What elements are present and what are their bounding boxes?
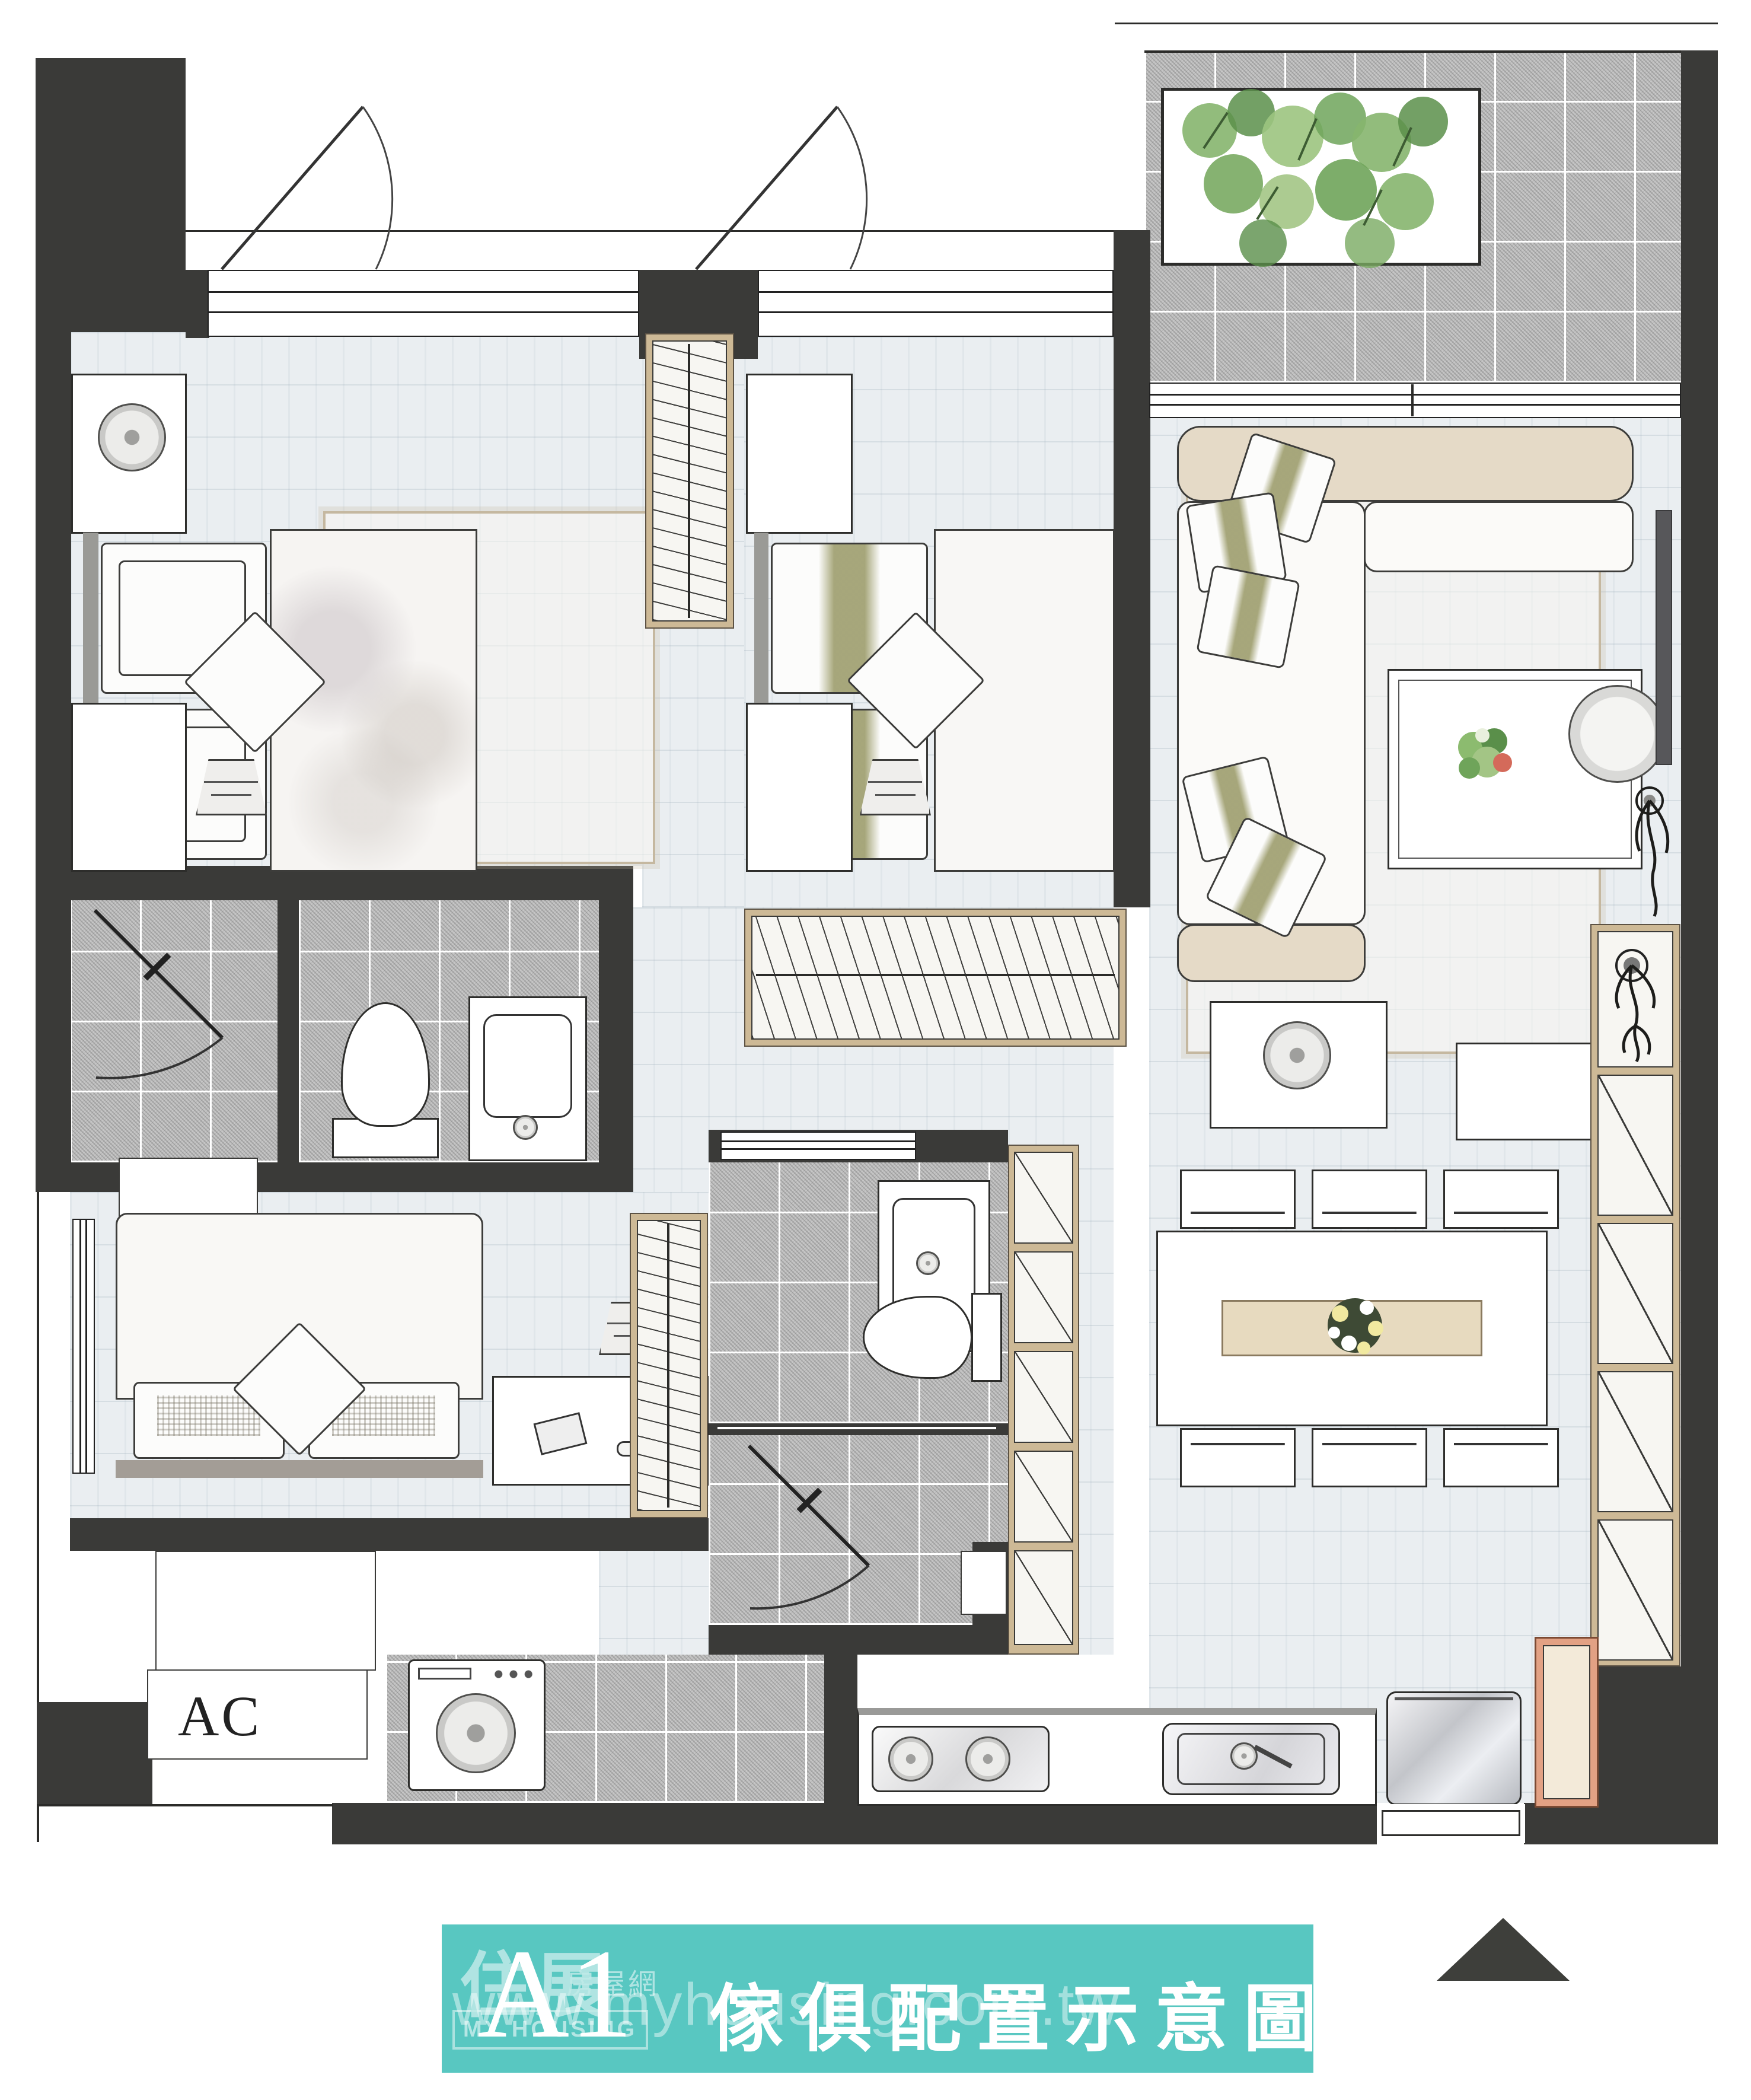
master-bedroom-window bbox=[208, 270, 639, 337]
title-banner: 住展 房屋網 MY HOUSING www.myhousing.com.tw A… bbox=[442, 1924, 1313, 2073]
wall-window-jamb-left bbox=[186, 270, 209, 338]
sofa-pillow bbox=[1196, 565, 1300, 669]
wall-right bbox=[1681, 50, 1718, 1844]
potted-plant-icon bbox=[1441, 712, 1530, 801]
plan-outline-bottom-left bbox=[37, 1804, 333, 1806]
cabinet-shelf bbox=[1014, 1152, 1073, 1244]
burner-icon bbox=[888, 1736, 933, 1782]
wall-master-bath-right bbox=[599, 866, 633, 1192]
planter-plants-icon bbox=[1168, 77, 1476, 273]
balcony-edge-line bbox=[1144, 50, 1681, 53]
plan-outline-top-right bbox=[1115, 23, 1718, 24]
toilet-tank bbox=[971, 1293, 1002, 1382]
faucet-icon bbox=[1230, 1742, 1258, 1770]
burner-icon bbox=[965, 1736, 1010, 1782]
entry-door-leaf bbox=[1382, 1810, 1520, 1836]
dining-chair bbox=[1180, 1428, 1296, 1487]
wall-entry-column-base bbox=[1590, 1666, 1681, 1803]
balcony-sliding-door bbox=[1149, 383, 1681, 418]
bathroom-door-swing-icon bbox=[89, 904, 267, 1082]
bed-headboard bbox=[116, 1460, 483, 1478]
shower-door-swing-icon bbox=[744, 1441, 916, 1613]
washer-door-icon bbox=[436, 1693, 516, 1773]
north-arrow-icon bbox=[1437, 1918, 1570, 1981]
closet-rod bbox=[667, 1223, 669, 1508]
page: { "banner": { "unit_label": "A1", "title… bbox=[0, 0, 1751, 2100]
wall-bedroom3-bottom bbox=[70, 1518, 709, 1551]
shower-sliding-track bbox=[717, 1427, 996, 1429]
sofa-armrest bbox=[1177, 924, 1366, 982]
refrigerator bbox=[1386, 1691, 1522, 1805]
entry-cabinet-shelf bbox=[1597, 1371, 1673, 1512]
dining-chair bbox=[1180, 1170, 1296, 1229]
dining-chair bbox=[1312, 1428, 1427, 1487]
kitchen-tall-cabinet bbox=[1543, 1645, 1590, 1799]
closet-rod bbox=[688, 344, 690, 618]
wall-shower-divider bbox=[278, 898, 299, 1162]
wall-bottom-right bbox=[1524, 1803, 1718, 1844]
branch-decor-icon bbox=[1601, 937, 1672, 1065]
bedroom-2-window bbox=[758, 270, 1114, 337]
sliding-door-split bbox=[1411, 384, 1414, 416]
wall-corner-step bbox=[37, 1702, 152, 1806]
dining-chair bbox=[1443, 1428, 1559, 1487]
faucet-icon bbox=[513, 1115, 538, 1140]
bedroom-3-window bbox=[72, 1219, 95, 1474]
table-lamp-icon bbox=[98, 403, 166, 471]
cabinet-shelf bbox=[1014, 1550, 1073, 1645]
casement-window-swing-icon bbox=[213, 100, 379, 273]
round-tray bbox=[1568, 685, 1666, 783]
ac-label: AC bbox=[178, 1683, 261, 1749]
wall-decor-branch-icon bbox=[1625, 777, 1678, 919]
wall-bottom-main bbox=[332, 1803, 1377, 1844]
closet-rod bbox=[756, 974, 1115, 976]
wall-kitchen-chunk bbox=[824, 1655, 857, 1809]
entry-cabinet-shelf bbox=[1597, 1519, 1673, 1661]
wall-left bbox=[36, 58, 71, 1192]
casement-window-swing-icon bbox=[688, 100, 854, 273]
vanity-basin bbox=[483, 1014, 572, 1118]
wall-topleft-block bbox=[70, 58, 186, 332]
entry-cabinet-shelf bbox=[1597, 1223, 1673, 1364]
fridge-handle bbox=[1395, 1697, 1513, 1700]
decor-bowl-icon bbox=[1263, 1021, 1331, 1089]
ac-equipment-panel bbox=[155, 1551, 376, 1671]
bathroom-2-window bbox=[720, 1132, 916, 1160]
cabinet-shelf bbox=[1014, 1251, 1073, 1343]
nightstand bbox=[746, 374, 853, 534]
dining-chair bbox=[1312, 1170, 1427, 1229]
wall-tv bbox=[1656, 510, 1672, 765]
wall-bedroom2-living-divider bbox=[1114, 230, 1150, 907]
cabinet-shelf bbox=[1014, 1351, 1073, 1443]
wall-bathroom2-divider bbox=[709, 1423, 1008, 1435]
floor-plan: AC bbox=[0, 0, 1751, 2100]
nightstand bbox=[71, 703, 187, 872]
banner-unit-label: A1 bbox=[477, 1924, 633, 2068]
nightstand bbox=[746, 703, 853, 872]
washer-knobs bbox=[492, 1668, 535, 1681]
flower-centerpiece-icon bbox=[1307, 1278, 1408, 1379]
pipe-shaft bbox=[961, 1551, 1007, 1615]
dining-chair bbox=[1443, 1170, 1559, 1229]
washer-controls bbox=[418, 1668, 471, 1680]
cabinet-shelf bbox=[1014, 1451, 1073, 1543]
sofa-seat-top bbox=[1364, 501, 1634, 572]
faucet-icon bbox=[916, 1251, 940, 1275]
entry-cabinet-shelf bbox=[1597, 1075, 1673, 1216]
bedroom-2-closet bbox=[751, 916, 1120, 1040]
banner-title: 傢俱配置示意圖 bbox=[710, 1959, 1313, 2066]
